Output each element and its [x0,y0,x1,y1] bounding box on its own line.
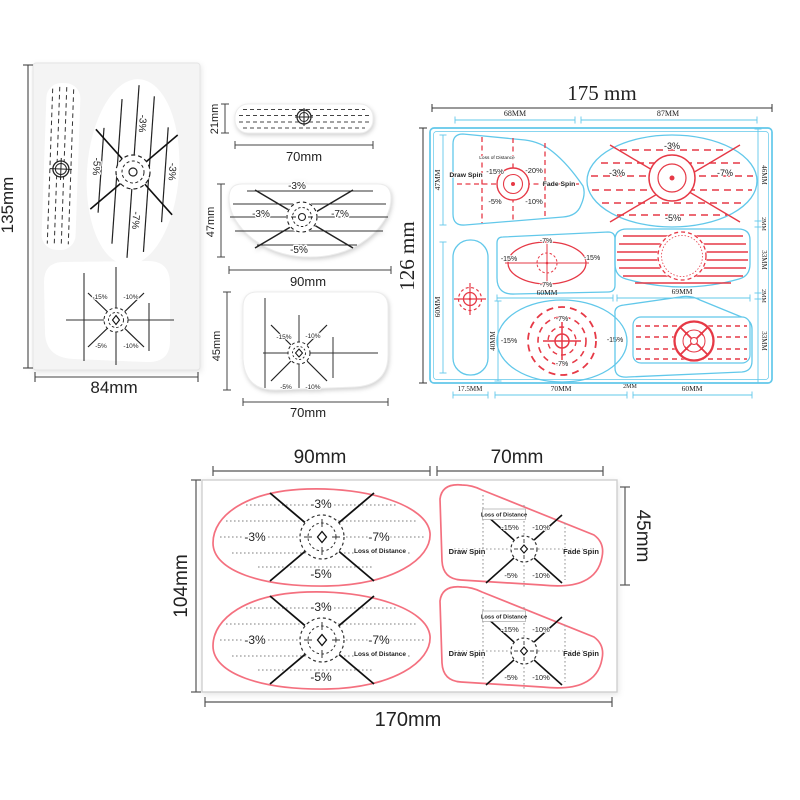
single-putter-width-label: 70mm [286,149,322,164]
left-iron-sticker: -15% -10% -5% -10% [44,261,174,365]
left-sheet-height-dim [23,65,33,368]
blue-top-dim-lines [455,117,757,124]
blue-dim-putter-h: 60MM [433,296,442,317]
single-iron-height-label: 45mm [211,331,223,362]
bottom-dim-iron-h: 45mm [632,510,653,563]
left-iron-br-label: -10% [123,343,138,350]
single-iron-width-label: 70mm [290,405,326,420]
bottom-driver-oval-2 [213,592,430,689]
blue-dim-right-3: 33MM [760,250,768,270]
blue-dim-top-left: 68MM [504,109,526,118]
single-putter-sticker [235,104,373,133]
single-driver-right-label: -7% [331,209,349,220]
blue-oval-top-label: -7% [556,316,568,323]
single-putter-height-label: 21mm [209,104,221,135]
single-driver-height-label: 47mm [205,207,217,238]
bottom-sheet-panel: -3% -3% -7% Loss of Distance -5% [130,445,670,765]
blue-oval-bottom-label: -7% [556,361,568,368]
single-iron-sticker: -15% -10% -5% -10% [243,292,388,391]
single-driver-width-dim [229,266,391,274]
bottom-left-dim [191,480,201,692]
blue-dim-iron-h: 47MM [433,169,442,190]
single-driver-width-label: 90mm [290,274,326,289]
single-iron-bl-label: -5% [280,384,292,391]
blue-dim-hybrid-w: 60MM [537,288,558,297]
blue-sheet-panel: 175 mm 68MM 87MM 126 mm [395,80,800,410]
single-stickers-panel: 21mm 70mm -3% -3 [205,85,420,420]
blue-iron-draw-label: Draw Spin [449,172,482,179]
blue-driver-top-label: -3% [664,141,680,151]
single-driver-bottom-label: -5% [290,245,308,256]
left-driver-top-label: -3% [136,114,148,133]
blue-sheet-height-dim [419,128,427,383]
single-iron-tl-label: -15% [276,334,291,341]
left-iron-tl-label: -15% [92,294,107,301]
bottom-top-dims [213,466,603,476]
single-driver-top-label: -3% [288,181,306,192]
blue-iron-tr-label: -20% [525,166,543,175]
blue-hybrid-left-label: -15% [501,256,517,263]
single-putter-height-dim [221,104,229,133]
blue-iron-tl-label: -15% [486,167,504,176]
left-putter-strip-sticker [41,82,81,250]
left-sheet-height-label: 135mm [0,177,17,234]
single-iron-height-dim [223,292,231,390]
blue-putter-strip [453,240,488,375]
blue-dim-right-1: 46MM [760,165,768,185]
bottom-right-dim [620,487,630,585]
blue-dim-bottom-4: 60MM [682,384,703,393]
left-driver-right-label: -3% [166,162,178,181]
left-iron-tr-label: -10% [123,294,138,301]
blue-rect-target-icon [673,320,715,362]
blue-iron-lod-label: Loss of Distance [479,155,515,161]
bottom-dim-iron-w: 70mm [491,447,544,468]
blue-oval-left-label: -15% [501,338,517,345]
left-driver-bottom-label: -7% [129,211,141,230]
single-putter-width-dim [235,141,373,149]
blue-hybrid-right-label: -15% [584,255,600,262]
left-sheet-width-label: 84mm [90,378,137,397]
blue-driver-right-label: -7% [717,168,733,178]
bottom-driver-oval-1 [213,489,430,586]
golf-impact-sticker-diagram: 135mm 84mm [0,0,800,800]
blue-iron-br-label: -10% [525,197,543,206]
blue-dim-top-right: 87MM [657,109,679,118]
blue-dim-right-4: 2MM [760,289,766,303]
blue-dim-bottom-1: 17.5MM [458,385,483,393]
bottom-bottom-dim [205,697,612,707]
bottom-dim-width: 170mm [375,709,442,731]
left-iron-bl-label: -5% [95,343,107,350]
single-driver-left-label: -3% [252,209,270,220]
blue-dim-fairway-w: 69MM [672,287,693,296]
blue-sheet-height-title: 126 mm [395,221,419,290]
blue-sheet-width-title: 175 mm [567,81,636,105]
single-driver-height-dim [217,184,225,257]
blue-dim-bottom-2: 70MM [551,384,572,393]
left-sheet-panel: 135mm 84mm [0,55,215,410]
blue-dim-bottom-3: 2MM [623,384,637,390]
blue-hybrid-top-label: -7% [540,238,552,245]
blue-dim-right-5: 33MM [760,331,768,351]
blue-driver-left-label: -3% [609,168,625,178]
blue-dim-right-2: 2MM [760,217,766,231]
blue-bottom-dims [453,392,752,399]
blue-dim-oval-h: 40MM [489,331,497,351]
blue-sheet-width-dim [432,104,772,112]
bottom-dim-driver-w: 90mm [294,447,347,468]
single-iron-br-label: -10% [305,384,320,391]
left-driver-left-label: -5% [90,157,102,176]
blue-driver-bottom-label: -5% [665,213,681,223]
single-driver-sticker: -3% -3% -7% -5% [229,181,391,257]
single-iron-tr-label: -10% [305,333,320,340]
blue-iron-bl-label: -5% [488,197,502,206]
bottom-dim-height: 104mm [171,554,192,617]
blue-iron-fade-label: Fade Spin [543,181,575,188]
